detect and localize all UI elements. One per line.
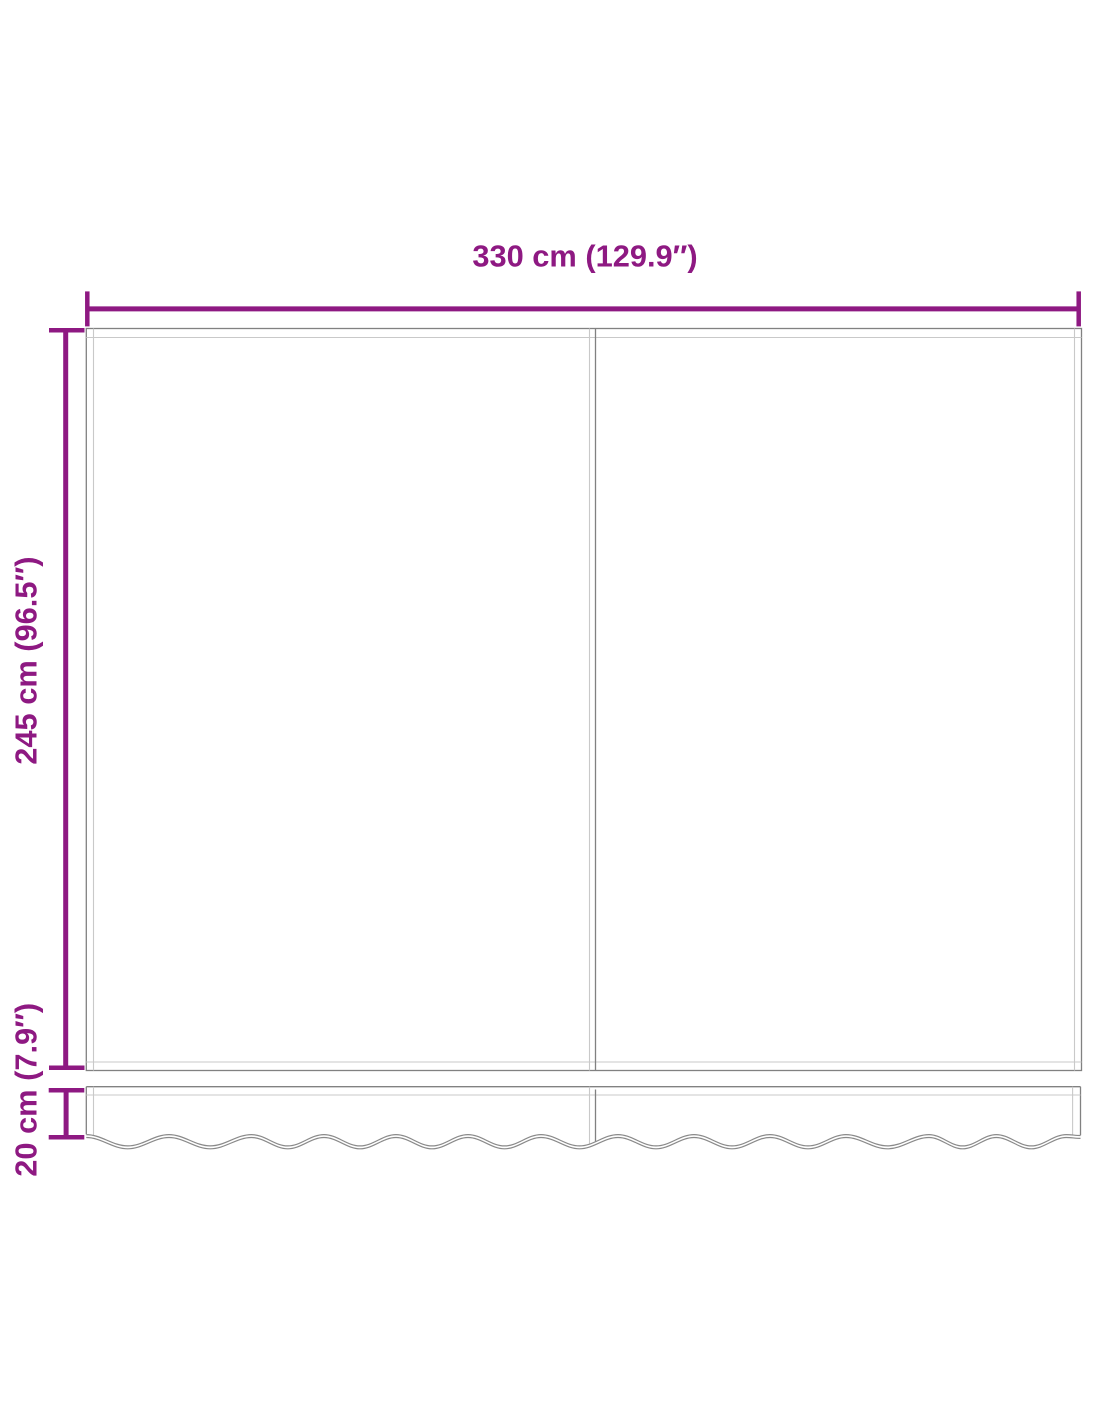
svg-text:245 cm (96.5″): 245 cm (96.5″): [9, 556, 44, 764]
svg-text:330 cm (129.9″): 330 cm (129.9″): [472, 239, 697, 274]
svg-text:20 cm (7.9″): 20 cm (7.9″): [9, 1003, 44, 1177]
